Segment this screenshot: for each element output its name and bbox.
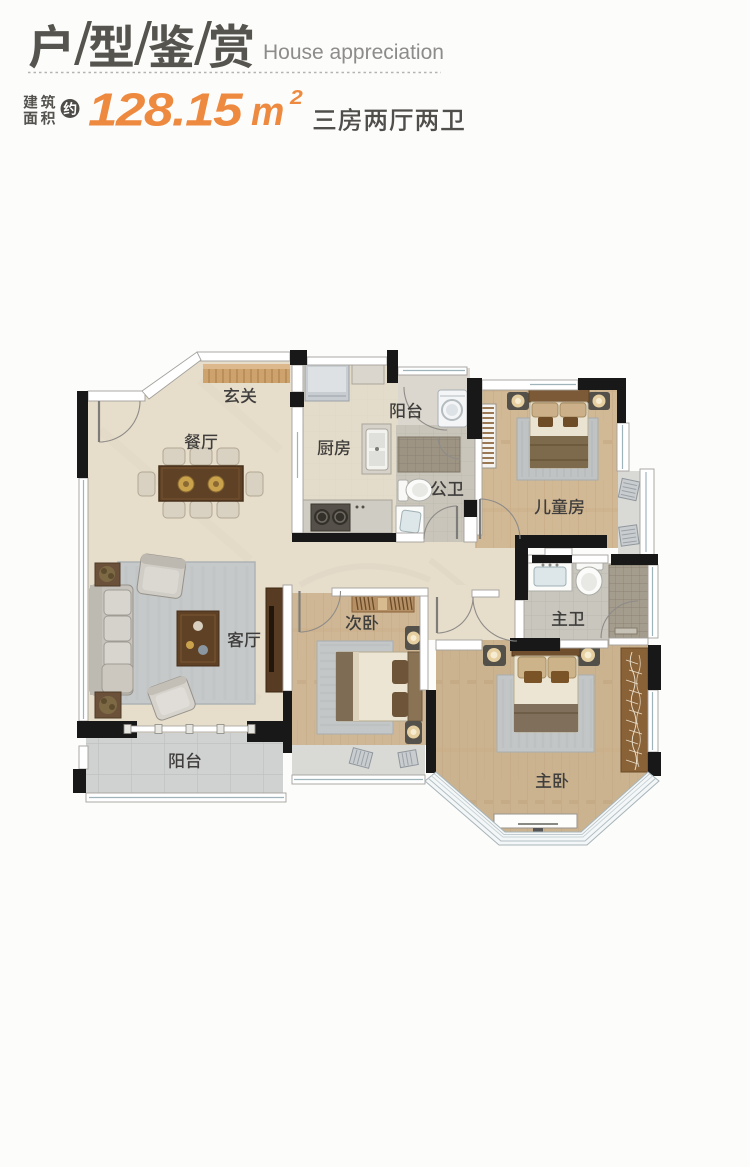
svg-text:128.15: 128.15 — [88, 84, 244, 136]
svg-text:House appreciation: House appreciation — [263, 41, 444, 64]
svg-text:2: 2 — [289, 86, 303, 109]
svg-text:m: m — [251, 90, 284, 134]
